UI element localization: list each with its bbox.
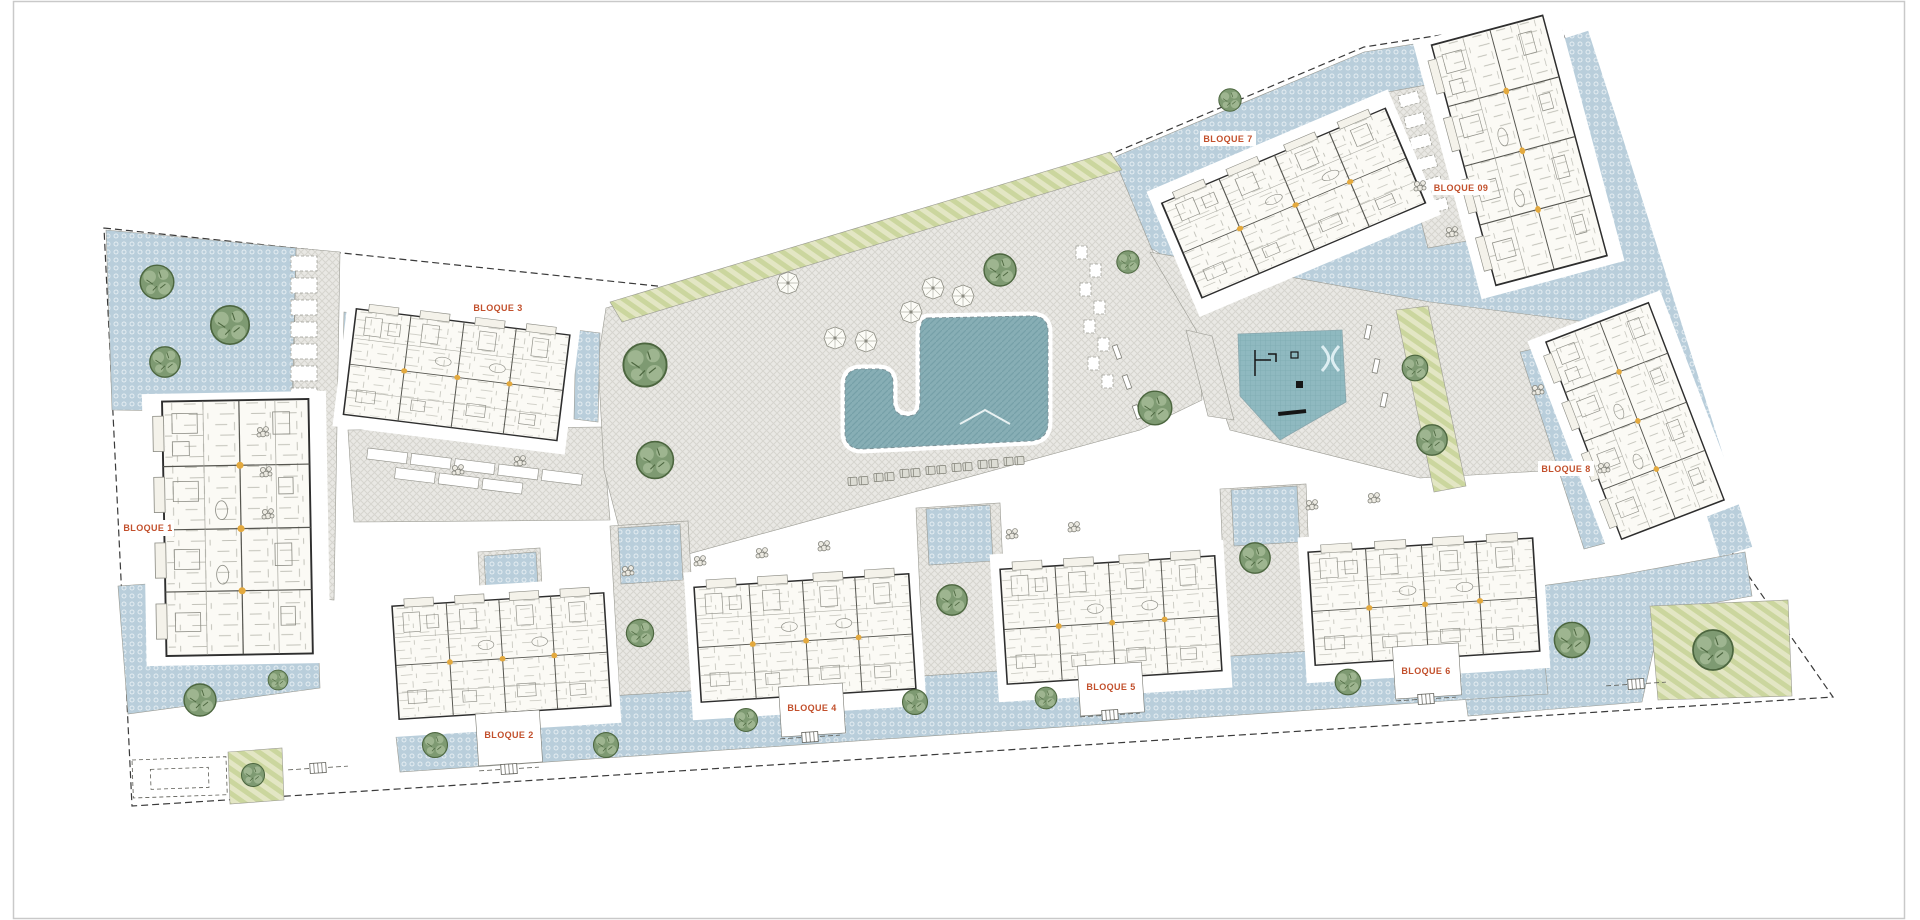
tree	[1138, 391, 1172, 425]
garden-topleft	[106, 230, 296, 412]
label-bloque-9: BLOQUE 09	[1434, 183, 1489, 193]
tree	[623, 343, 666, 386]
building-bloque-3	[332, 293, 581, 455]
tree	[1693, 630, 1733, 670]
floorplan-viewport: BLOQUE 1 BLOQUE 2 BLOQUE 3 BLOQUE 4 BLOQ…	[0, 0, 1920, 920]
tree	[211, 306, 249, 344]
label-bloque-1: BLOQUE 1	[123, 523, 172, 533]
tree	[1240, 543, 1270, 573]
label-bloque-2: BLOQUE 2	[484, 730, 533, 740]
tree	[594, 733, 619, 758]
tree	[734, 708, 757, 731]
garden-patch-4	[1231, 486, 1300, 546]
label-bloque-7: BLOQUE 7	[1203, 134, 1252, 144]
tree	[637, 442, 674, 479]
tree	[984, 254, 1016, 286]
tree	[1417, 425, 1447, 455]
label-bloque-5: BLOQUE 5	[1086, 682, 1135, 692]
tree	[423, 733, 448, 758]
tree	[903, 690, 928, 715]
tree	[626, 619, 653, 646]
tree	[1335, 669, 1361, 695]
site-plan-svg: BLOQUE 1 BLOQUE 2 BLOQUE 3 BLOQUE 4 BLOQ…	[0, 0, 1920, 920]
tree	[241, 763, 264, 786]
tree	[268, 670, 288, 690]
tree	[1117, 251, 1139, 273]
garden-patch-3	[926, 505, 993, 565]
label-bloque-6: BLOQUE 6	[1401, 666, 1450, 676]
tree	[150, 347, 180, 377]
tree	[1219, 89, 1241, 111]
label-bloque-8: BLOQUE 8	[1541, 464, 1590, 474]
tree	[1402, 355, 1428, 381]
tree	[937, 585, 967, 615]
label-bloque-4: BLOQUE 4	[787, 703, 836, 713]
tree	[184, 684, 216, 716]
tree	[1035, 687, 1057, 709]
label-bloque-3: BLOQUE 3	[473, 303, 522, 313]
tree	[1554, 622, 1589, 657]
tree	[140, 265, 174, 299]
